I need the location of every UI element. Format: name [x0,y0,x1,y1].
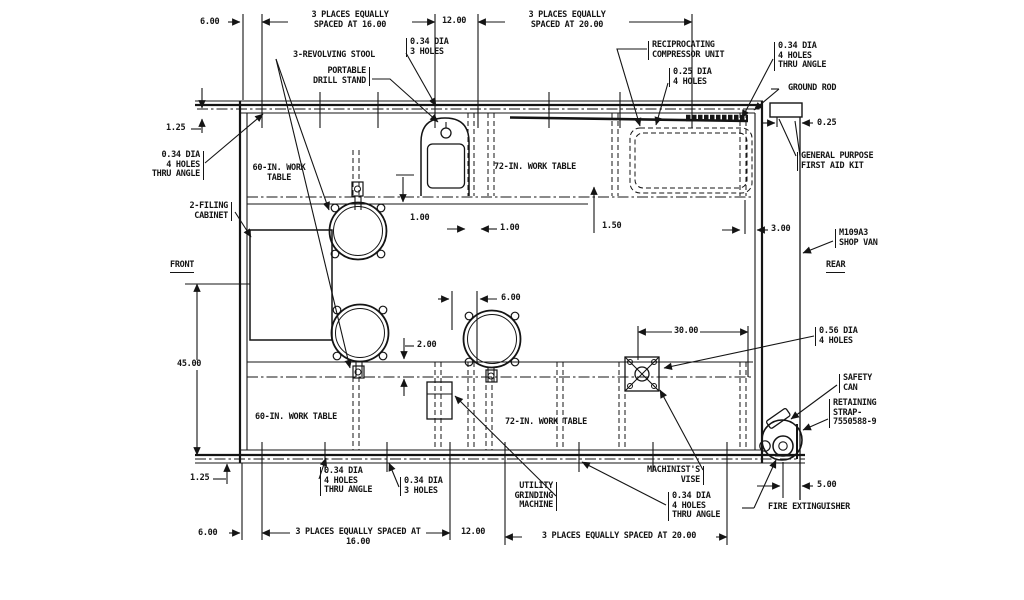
dim-025: 0.25 [817,119,836,129]
first-aid-kit-symbol [770,103,802,117]
callout-034dia-4holes-br: 0.34 DIA 4 HOLES THRU ANGLE [668,492,720,521]
callout-034dia-4holes-bl: 0.34 DIA 4 HOLES THRU ANGLE [320,467,372,496]
callout-034dia-4holes-tr: 0.34 DIA 4 HOLES THRU ANGLE [774,42,826,71]
label-rear: REAR [826,261,845,273]
callout-056dia-4holes: 0.56 DIA 4 HOLES [815,327,858,346]
dim-16-top: 3 PLACES EQUALLY SPACED AT 16.00 [288,11,412,30]
dim-6-bottom: 6.00 [198,529,217,539]
dim-125-topleft: 1.25 [166,124,185,134]
grinding-machine-symbol [427,382,452,419]
revolving-stool-symbol [464,311,521,383]
dim-150: 1.50 [602,222,621,232]
dim-20-bottom: 3 PLACES EQUALLY SPACED AT 20.00 [522,532,716,542]
callout-fire-extinguisher: FIRE EXTINGUISHER [768,503,850,513]
dim-6-top: 6.00 [200,18,219,28]
revolving-stool-symbol [332,305,389,379]
callout-filing-cabinet: 2-FILING CABINET [160,202,232,221]
callout-retaining-strap: RETAINING STRAP- 7550588-9 [829,399,876,428]
callout-034dia-4holes-tl: 0.34 DIA 4 HOLES THRU ANGLE [146,151,204,180]
van-walls [185,14,805,545]
dim-100-a: 1.00 [410,214,429,224]
callout-grinding-machine: UTILITY GRINDING MACHINE [505,482,557,511]
callout-drill-stand: PORTABLE DRILL STAND [308,67,370,86]
dim-12-bottom: 12.00 [461,528,485,538]
label-60in-table-top: 60-IN. WORK TABLE [249,164,309,183]
dim-300: 3.00 [771,225,790,235]
callout-machinists-vise: MACHINIST'S VISE [630,466,704,485]
shop-van-floor-plan: 6.00 3 PLACES EQUALLY SPACED AT 16.00 12… [0,0,1024,600]
label-60in-table-bottom: 60-IN. WORK TABLE [255,413,337,423]
dim-6-mid: 6.00 [501,294,520,304]
dim-100-b: 1.00 [500,224,519,234]
callout-m109a3: M109A3 SHOP VAN [835,229,878,248]
dim-200: 2.00 [417,341,436,351]
dim-12-top: 12.00 [442,17,466,27]
callout-034dia-3holes-bottom: 0.34 DIA 3 HOLES [400,477,443,496]
callout-revolving-stool: 3-REVOLVING STOOL [293,51,375,61]
label-front: FRONT [170,261,194,273]
van-walls-heavy [195,101,805,463]
callout-safety-can: SAFETY CAN [839,374,872,393]
dim-16-bottom: 3 PLACES EQUALLY SPACED AT 16.00 [290,528,426,547]
dim-3000: 30.00 [672,327,700,337]
dim-45: 45.00 [175,360,203,370]
drill-stand-symbol [421,118,469,196]
dim-20-top: 3 PLACES EQUALLY SPACED AT 20.00 [505,11,629,30]
label-72in-table-top: 72-IN. WORK TABLE [494,163,576,173]
callout-034dia-3holes-top: 0.34 DIA 3 HOLES [406,38,449,57]
dim-125-bottomleft: 1.25 [190,474,209,484]
filing-cabinet-symbol [250,230,332,340]
callout-025dia-4holes: 0.25 DIA 4 HOLES [669,68,712,87]
callout-first-aid-kit: GENERAL PURPOSE FIRST AID KIT [797,152,873,171]
callout-compressor: RECIPROCATING COMPRESSOR UNIT [648,41,724,60]
dim-500: 5.00 [817,481,836,491]
revolving-stool-symbol [330,182,387,260]
compressor-outline [630,128,752,193]
dimension-lines [191,22,813,537]
label-72in-table-bottom: 72-IN. WORK TABLE [505,418,587,428]
callout-ground-rod: GROUND ROD [788,84,836,94]
